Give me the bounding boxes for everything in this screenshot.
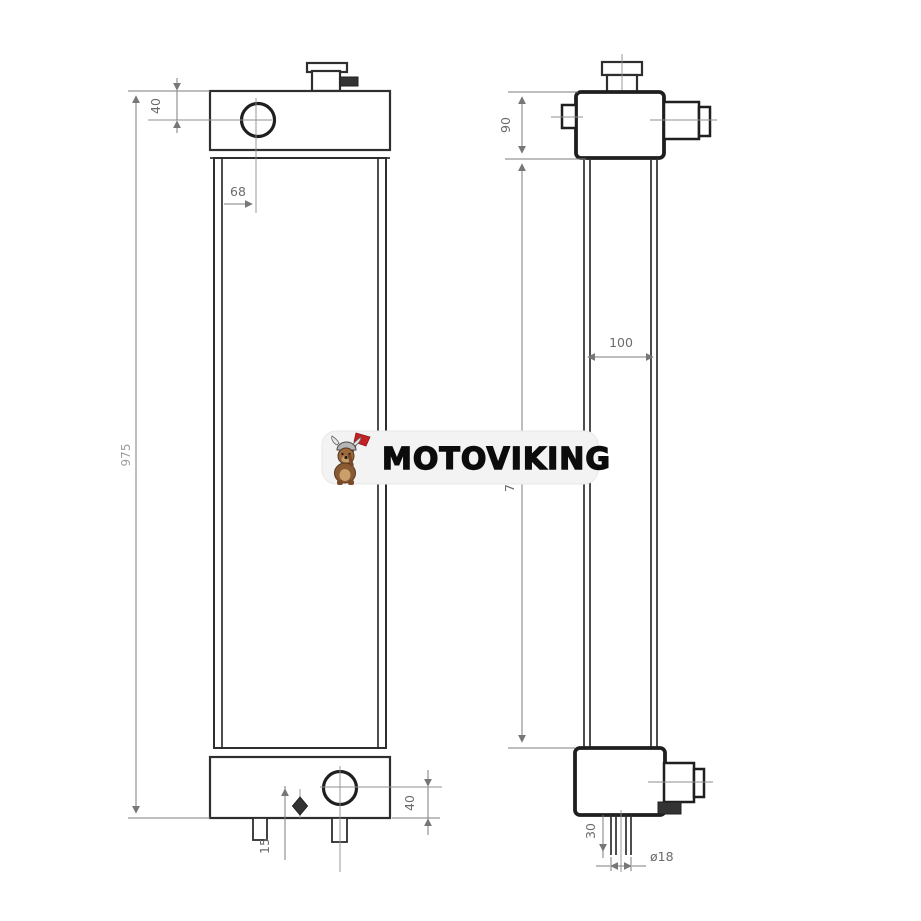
side-bottom-tank (575, 748, 665, 815)
front-top-tank (210, 91, 390, 150)
dim-label-975: 975 (119, 444, 133, 467)
dim-label-90: 90 (498, 117, 513, 133)
side-top-left-stub (562, 105, 576, 128)
dim-bottom-port-offset: 40 (392, 770, 440, 835)
dim-label-40-top: 40 (148, 98, 163, 114)
dim-top-port-offset: 40 (148, 78, 177, 133)
dim-core-width: 100 (588, 335, 653, 357)
dim-label-40-bottom: 40 (402, 795, 417, 811)
dim-drain-length: 30 (583, 815, 603, 858)
dim-label-30: 30 (583, 823, 598, 839)
dim-label-core-height: 7 (502, 484, 517, 492)
dim-label-100: 100 (609, 335, 633, 350)
filler-cap (307, 63, 358, 91)
front-right-stub (332, 818, 347, 842)
dim-overall-height: 975 (119, 91, 210, 818)
watermark-badge: MOTOVIKING (322, 431, 611, 485)
brand-text: MOTOVIKING (382, 442, 611, 477)
overflow-stub (340, 77, 358, 86)
radiator-technical-drawing: 975 40 68 40 15 (0, 0, 921, 921)
drawing-svg: 975 40 68 40 15 (0, 0, 921, 921)
dim-label-15: 15 (257, 838, 272, 854)
front-left-stub (253, 818, 267, 840)
side-top-tank (576, 92, 664, 158)
dim-label-68: 68 (230, 184, 246, 199)
side-drain-pipe (611, 810, 631, 872)
dim-drain-diameter: ø18 (596, 849, 674, 871)
dim-label-dia18: ø18 (650, 849, 674, 864)
